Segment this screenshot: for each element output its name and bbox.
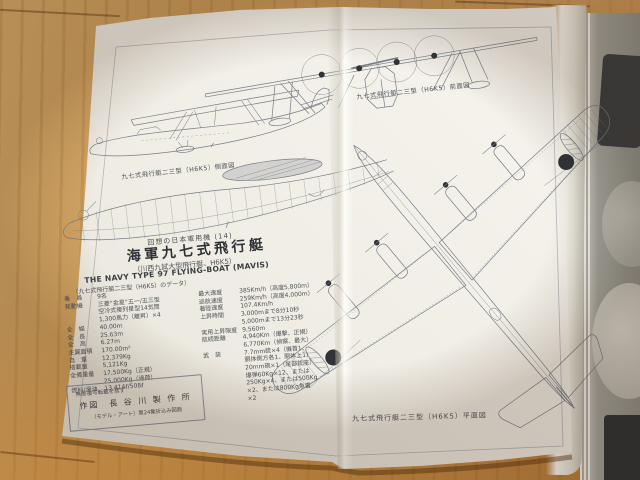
photo-of-magazine-foldout: 九七式飛行艇二三型（H6K5）前面図 九七式飛行艇二三型（H6K5）側面図 九七… xyxy=(0,0,640,480)
spec-value: ×2 xyxy=(247,395,256,403)
spec-column-right: 最大速度 385Km/h（高度5,800m） 巡航速度 259Km/h（高度4,… xyxy=(198,280,349,406)
